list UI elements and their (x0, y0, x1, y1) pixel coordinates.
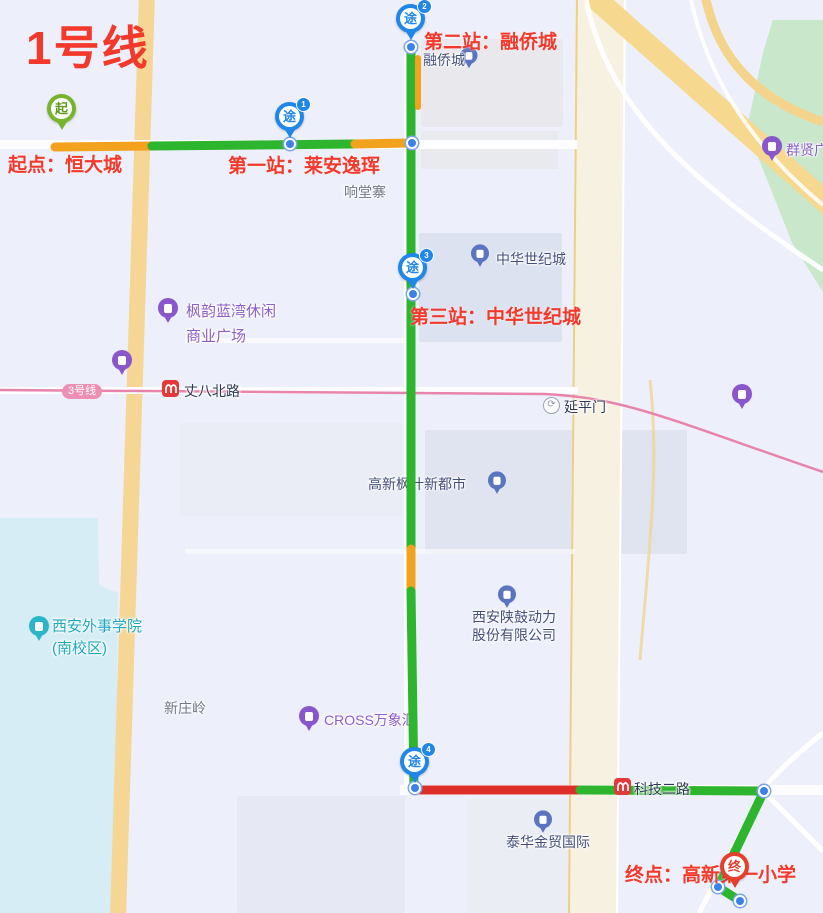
waypoint-number-badge: 3 (419, 248, 434, 263)
waypoint-marker-4[interactable]: 途 4 (400, 747, 430, 785)
route-node-dot[interactable] (758, 785, 770, 797)
marker-tail (409, 773, 421, 783)
route-label-start: 起点：恒大城 (8, 150, 122, 177)
waypoint-marker-3[interactable]: 途 3 (398, 253, 428, 291)
waypoint-marker-2[interactable]: 途 2 (396, 4, 426, 42)
poi-label-keji[interactable]: 科技二路 (634, 779, 690, 799)
start-marker-bubble: 起 (47, 94, 76, 123)
waypoint-marker-1[interactable]: 途 1 (275, 102, 305, 140)
marker-tail (56, 120, 68, 130)
marker-tail (729, 878, 741, 888)
end-marker[interactable]: 终 (720, 852, 750, 890)
waypoint-number-badge: 1 (296, 97, 311, 112)
end-marker-glyph: 终 (724, 856, 745, 877)
line-title: 1号线 (26, 12, 150, 78)
route-node-dot[interactable] (405, 41, 417, 53)
marker-tail (405, 30, 417, 40)
route-label-end: 终点：高新第一小学 (625, 860, 796, 887)
waypoint-number-badge: 4 (421, 742, 436, 757)
route-label-station-3: 第三站：中华世纪城 (410, 302, 581, 329)
route-node-dot[interactable] (406, 137, 418, 149)
start-marker[interactable]: 起 (47, 94, 77, 132)
start-marker-glyph: 起 (51, 98, 72, 119)
route-node-dot[interactable] (734, 895, 746, 907)
map-canvas[interactable]: 起 途 1 途 2 途 3 途 4 终 1号线 起点：恒大城 第一站：莱安逸珲 … (0, 0, 823, 913)
end-marker-bubble: 终 (720, 852, 749, 881)
route-label-station-1: 第一站：莱安逸珲 (228, 151, 380, 178)
metro-station-icon-keji[interactable] (614, 778, 631, 795)
route-label-station-2: 第二站：融侨城 (424, 27, 557, 54)
marker-tail (284, 128, 296, 138)
marker-tail (407, 279, 419, 289)
